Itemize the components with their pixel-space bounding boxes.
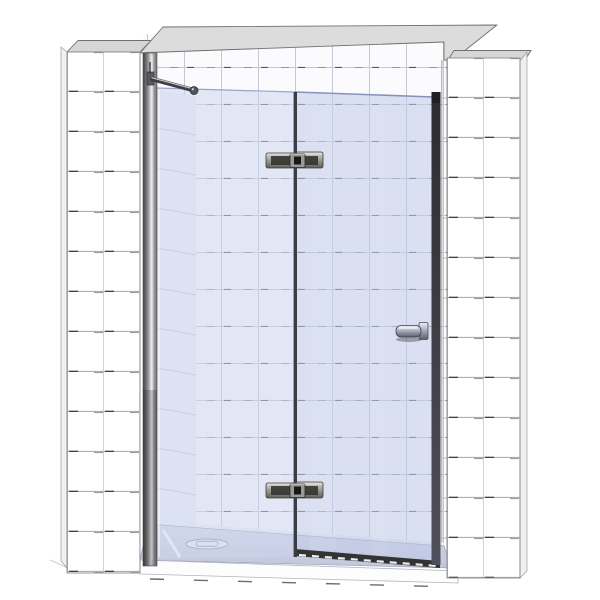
right-tiled-wall	[447, 52, 527, 578]
handle-shadow	[396, 337, 422, 342]
left-pillar-side-face	[61, 47, 67, 568]
side-seal-top-cap	[432, 92, 441, 103]
glass-reflection-streak	[372, 100, 388, 555]
render-canvas	[0, 0, 600, 600]
left-tiled-wall	[61, 47, 140, 573]
door-handle-knob	[396, 323, 428, 343]
right-pillar-side-face	[520, 52, 527, 578]
top-hinge	[266, 152, 323, 168]
bottom-hinge	[266, 482, 323, 498]
handle-bar	[396, 326, 421, 338]
left-pillar-top-face	[67, 41, 151, 53]
profile-lower-shadow	[143, 390, 157, 566]
support-bar-glass-clamp	[190, 87, 198, 95]
wall-mounting-profile	[143, 53, 157, 566]
shower-enclosure-render	[0, 0, 600, 600]
